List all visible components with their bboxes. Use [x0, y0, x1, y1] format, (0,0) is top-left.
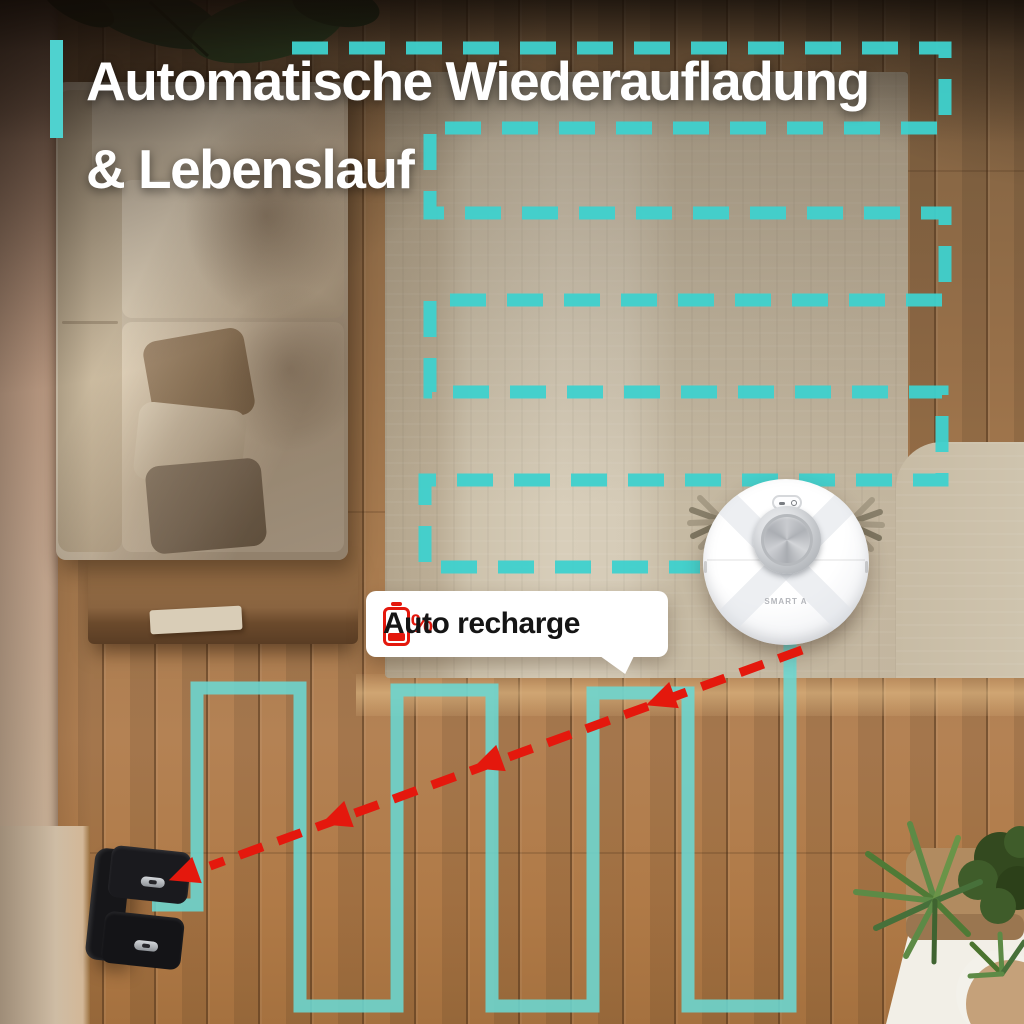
headline-accent-bar	[50, 40, 63, 138]
callout-label: Auto recharge	[383, 607, 580, 641]
headline-line2: & Lebenslauf	[86, 138, 686, 200]
recharge-arrow-line	[210, 650, 802, 866]
auto-recharge-callout: 20% Auto recharge	[366, 591, 668, 657]
headline-line1: Automatische Wiederaufladung	[86, 50, 986, 112]
corner-plants	[850, 796, 1024, 1024]
recharge-arrowheads	[164, 682, 679, 894]
product-marketing-image: SMART A	[0, 0, 1024, 1024]
